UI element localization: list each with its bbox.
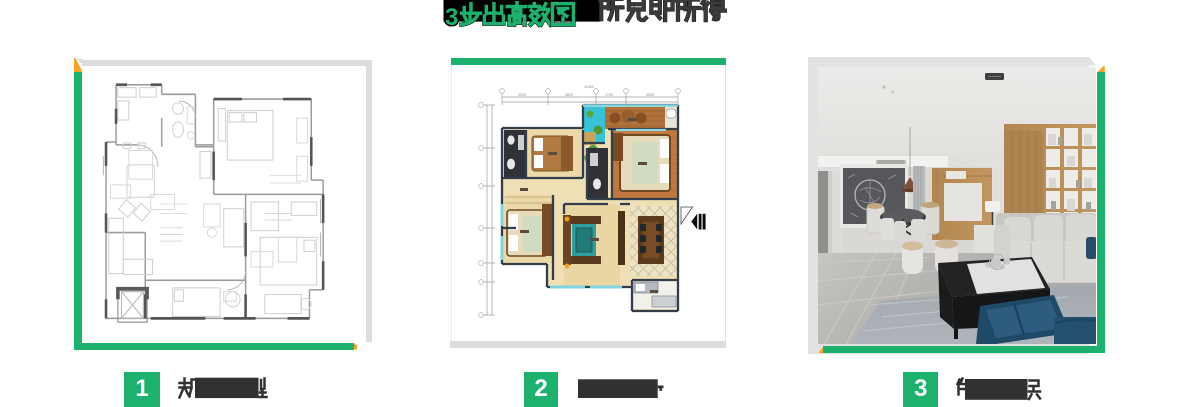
svg-text:2000: 2000 bbox=[518, 93, 526, 97]
svg-text:4500: 4500 bbox=[646, 93, 654, 97]
svg-text:1700: 1700 bbox=[605, 93, 613, 97]
svg-text:11800: 11800 bbox=[584, 85, 594, 89]
svg-text:3: 3 bbox=[445, 4, 458, 31]
svg-text:3600: 3600 bbox=[565, 93, 573, 97]
